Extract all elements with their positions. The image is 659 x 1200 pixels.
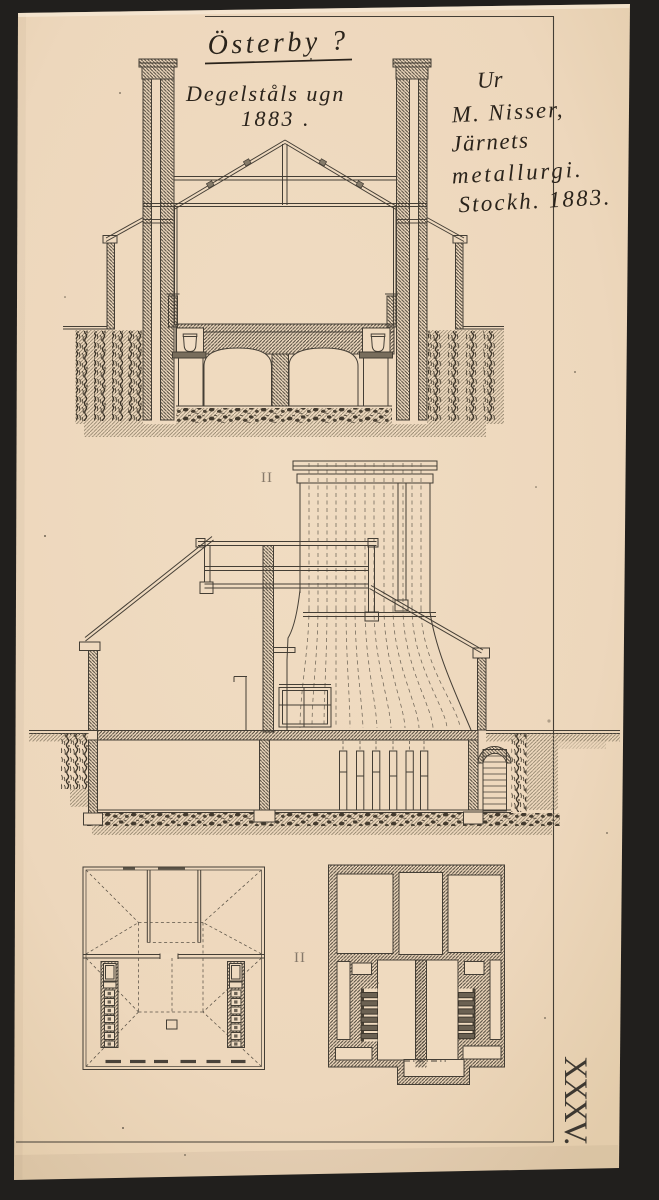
svg-text:XXXV.: XXXV.	[557, 1056, 593, 1144]
svg-text:1883 .: 1883 .	[241, 106, 311, 131]
svg-text:Järnets: Järnets	[451, 127, 530, 156]
svg-text:Degelståls ugn: Degelståls ugn	[185, 81, 345, 106]
svg-text:II: II	[261, 470, 273, 486]
svg-text:II: II	[294, 950, 306, 966]
svg-text:Ur: Ur	[476, 67, 504, 93]
svg-text:Österby ?: Österby ?	[207, 25, 349, 61]
